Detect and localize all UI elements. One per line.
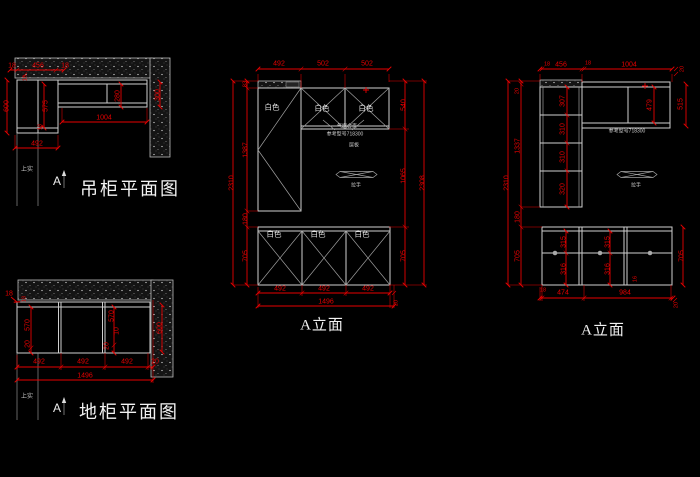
dim-label: 180 xyxy=(243,213,250,225)
dim-label: 492 xyxy=(77,359,89,366)
dim-label: 456 xyxy=(555,62,567,69)
note-text: 参考型号718300 xyxy=(609,130,646,135)
dim-label: 492 xyxy=(318,286,330,293)
dim-label: 600 xyxy=(157,322,164,334)
dim-label: 18 xyxy=(22,296,28,302)
dim-label: 20 xyxy=(104,342,111,350)
note-text: 拉手 xyxy=(631,184,641,189)
door-label: 白色 xyxy=(315,104,330,112)
dim-label: 479 xyxy=(647,99,654,111)
door-label: 白色 xyxy=(311,230,326,238)
base-plan-drawing xyxy=(11,280,173,420)
dim-label: 456 xyxy=(32,63,44,70)
dim-label: 492 xyxy=(33,359,45,366)
door-label: 白色 xyxy=(355,230,370,238)
note-text: 气撑合页 xyxy=(337,125,357,130)
dim-label: 18 xyxy=(5,291,13,298)
note-text: 上实 xyxy=(21,394,33,400)
door-label: 白色 xyxy=(359,104,374,112)
knob xyxy=(648,251,653,256)
drawing-title-hanging-plan: 吊柜平面图 xyxy=(80,180,180,198)
dim-label: 18 xyxy=(540,288,546,294)
dim-label: 310 xyxy=(560,151,567,163)
drawing-title-base-plan: 地柜平面图 xyxy=(79,403,179,421)
dim-label: 705 xyxy=(679,250,686,262)
dim-label: 502 xyxy=(361,61,373,68)
dim-label: 2308 xyxy=(420,175,427,191)
dim-label: 18 xyxy=(544,62,550,68)
dim-label: 20 xyxy=(25,340,32,348)
dim-label: 320 xyxy=(560,183,567,195)
dim-label: 492 xyxy=(121,359,133,366)
dim-label: 1496 xyxy=(77,373,93,380)
dim-label: 315 xyxy=(605,236,612,248)
dim-label: 20 xyxy=(674,302,680,308)
drawing-title-elevation-right: A立面 xyxy=(581,324,625,339)
dim-label: 10 xyxy=(114,327,121,335)
drawing-title-elevation-mid: A立面 xyxy=(300,319,344,334)
dim-label: 705 xyxy=(515,250,522,262)
dim-label: 984 xyxy=(619,290,631,297)
dim-label: 310 xyxy=(560,123,567,135)
dim-label: 316 xyxy=(605,263,612,275)
wall-hatch xyxy=(18,280,153,300)
dim-label: 515 xyxy=(678,98,685,110)
dim-label: 20 xyxy=(151,359,159,366)
cad-canvas: 18 456 18 600 575 18 18 280 1004 300 492… xyxy=(0,0,700,477)
knob xyxy=(553,251,558,256)
dim-label: 492 xyxy=(273,61,285,68)
section-label: A xyxy=(53,175,61,187)
dim-label: 18 xyxy=(585,61,591,67)
dim-label: 1337 xyxy=(515,138,522,154)
dim-label: 20 xyxy=(680,66,686,72)
knob xyxy=(598,251,603,256)
dim-label: 180 xyxy=(515,211,522,223)
dim-label: 280 xyxy=(115,90,122,102)
dim-label: 600 xyxy=(4,100,11,112)
dim-label: 575 xyxy=(43,100,50,112)
dim-label: 16 xyxy=(633,276,639,282)
door-label: 白色 xyxy=(267,230,282,238)
door-label: 白色 xyxy=(265,103,280,111)
dim-label: 18 xyxy=(61,63,69,70)
dim-label: 540 xyxy=(401,99,408,111)
dim-label: 1387 xyxy=(243,142,250,158)
note-text: 层板 xyxy=(349,144,359,149)
dim-label: 83 xyxy=(243,81,249,87)
dim-label: 1496 xyxy=(318,299,334,306)
note-text: 上实 xyxy=(21,167,33,173)
dim-label: 2310 xyxy=(504,175,511,191)
wall-hatch xyxy=(150,58,170,157)
dim-label: 300 xyxy=(155,89,162,101)
dim-label: 570 xyxy=(25,319,32,331)
dim-label: 1004 xyxy=(621,62,637,69)
top-strip-hatch xyxy=(540,80,582,87)
note-text: 参考型号718300 xyxy=(327,133,364,138)
section-label: A xyxy=(53,402,61,414)
note-text: 拉手 xyxy=(351,184,361,189)
dim-label: 502 xyxy=(317,61,329,68)
dim-label: 315 xyxy=(561,236,568,248)
dim-label: 1004 xyxy=(96,115,112,122)
dim-label: 492 xyxy=(31,141,43,148)
dim-label: 20 xyxy=(515,88,521,94)
dim-label: 316 xyxy=(561,263,568,275)
dim-label: 492 xyxy=(362,286,374,293)
dim-label: 307 xyxy=(560,95,567,107)
dim-label: 570 xyxy=(109,310,116,322)
dim-label: 1065 xyxy=(401,168,408,184)
elevation-right-drawing xyxy=(508,67,686,302)
dim-label: 18 xyxy=(8,63,16,70)
dim-label: 20 xyxy=(394,300,400,306)
dim-label: 492 xyxy=(274,286,286,293)
dim-label: 2310 xyxy=(229,175,236,191)
dim-label: 705 xyxy=(243,250,250,262)
dim-label: 18 xyxy=(38,124,44,130)
dim-label: 18 xyxy=(23,75,29,81)
elevation-mid-drawing xyxy=(233,67,427,308)
dim-label: 474 xyxy=(557,290,569,297)
dim-label: 705 xyxy=(401,250,408,262)
